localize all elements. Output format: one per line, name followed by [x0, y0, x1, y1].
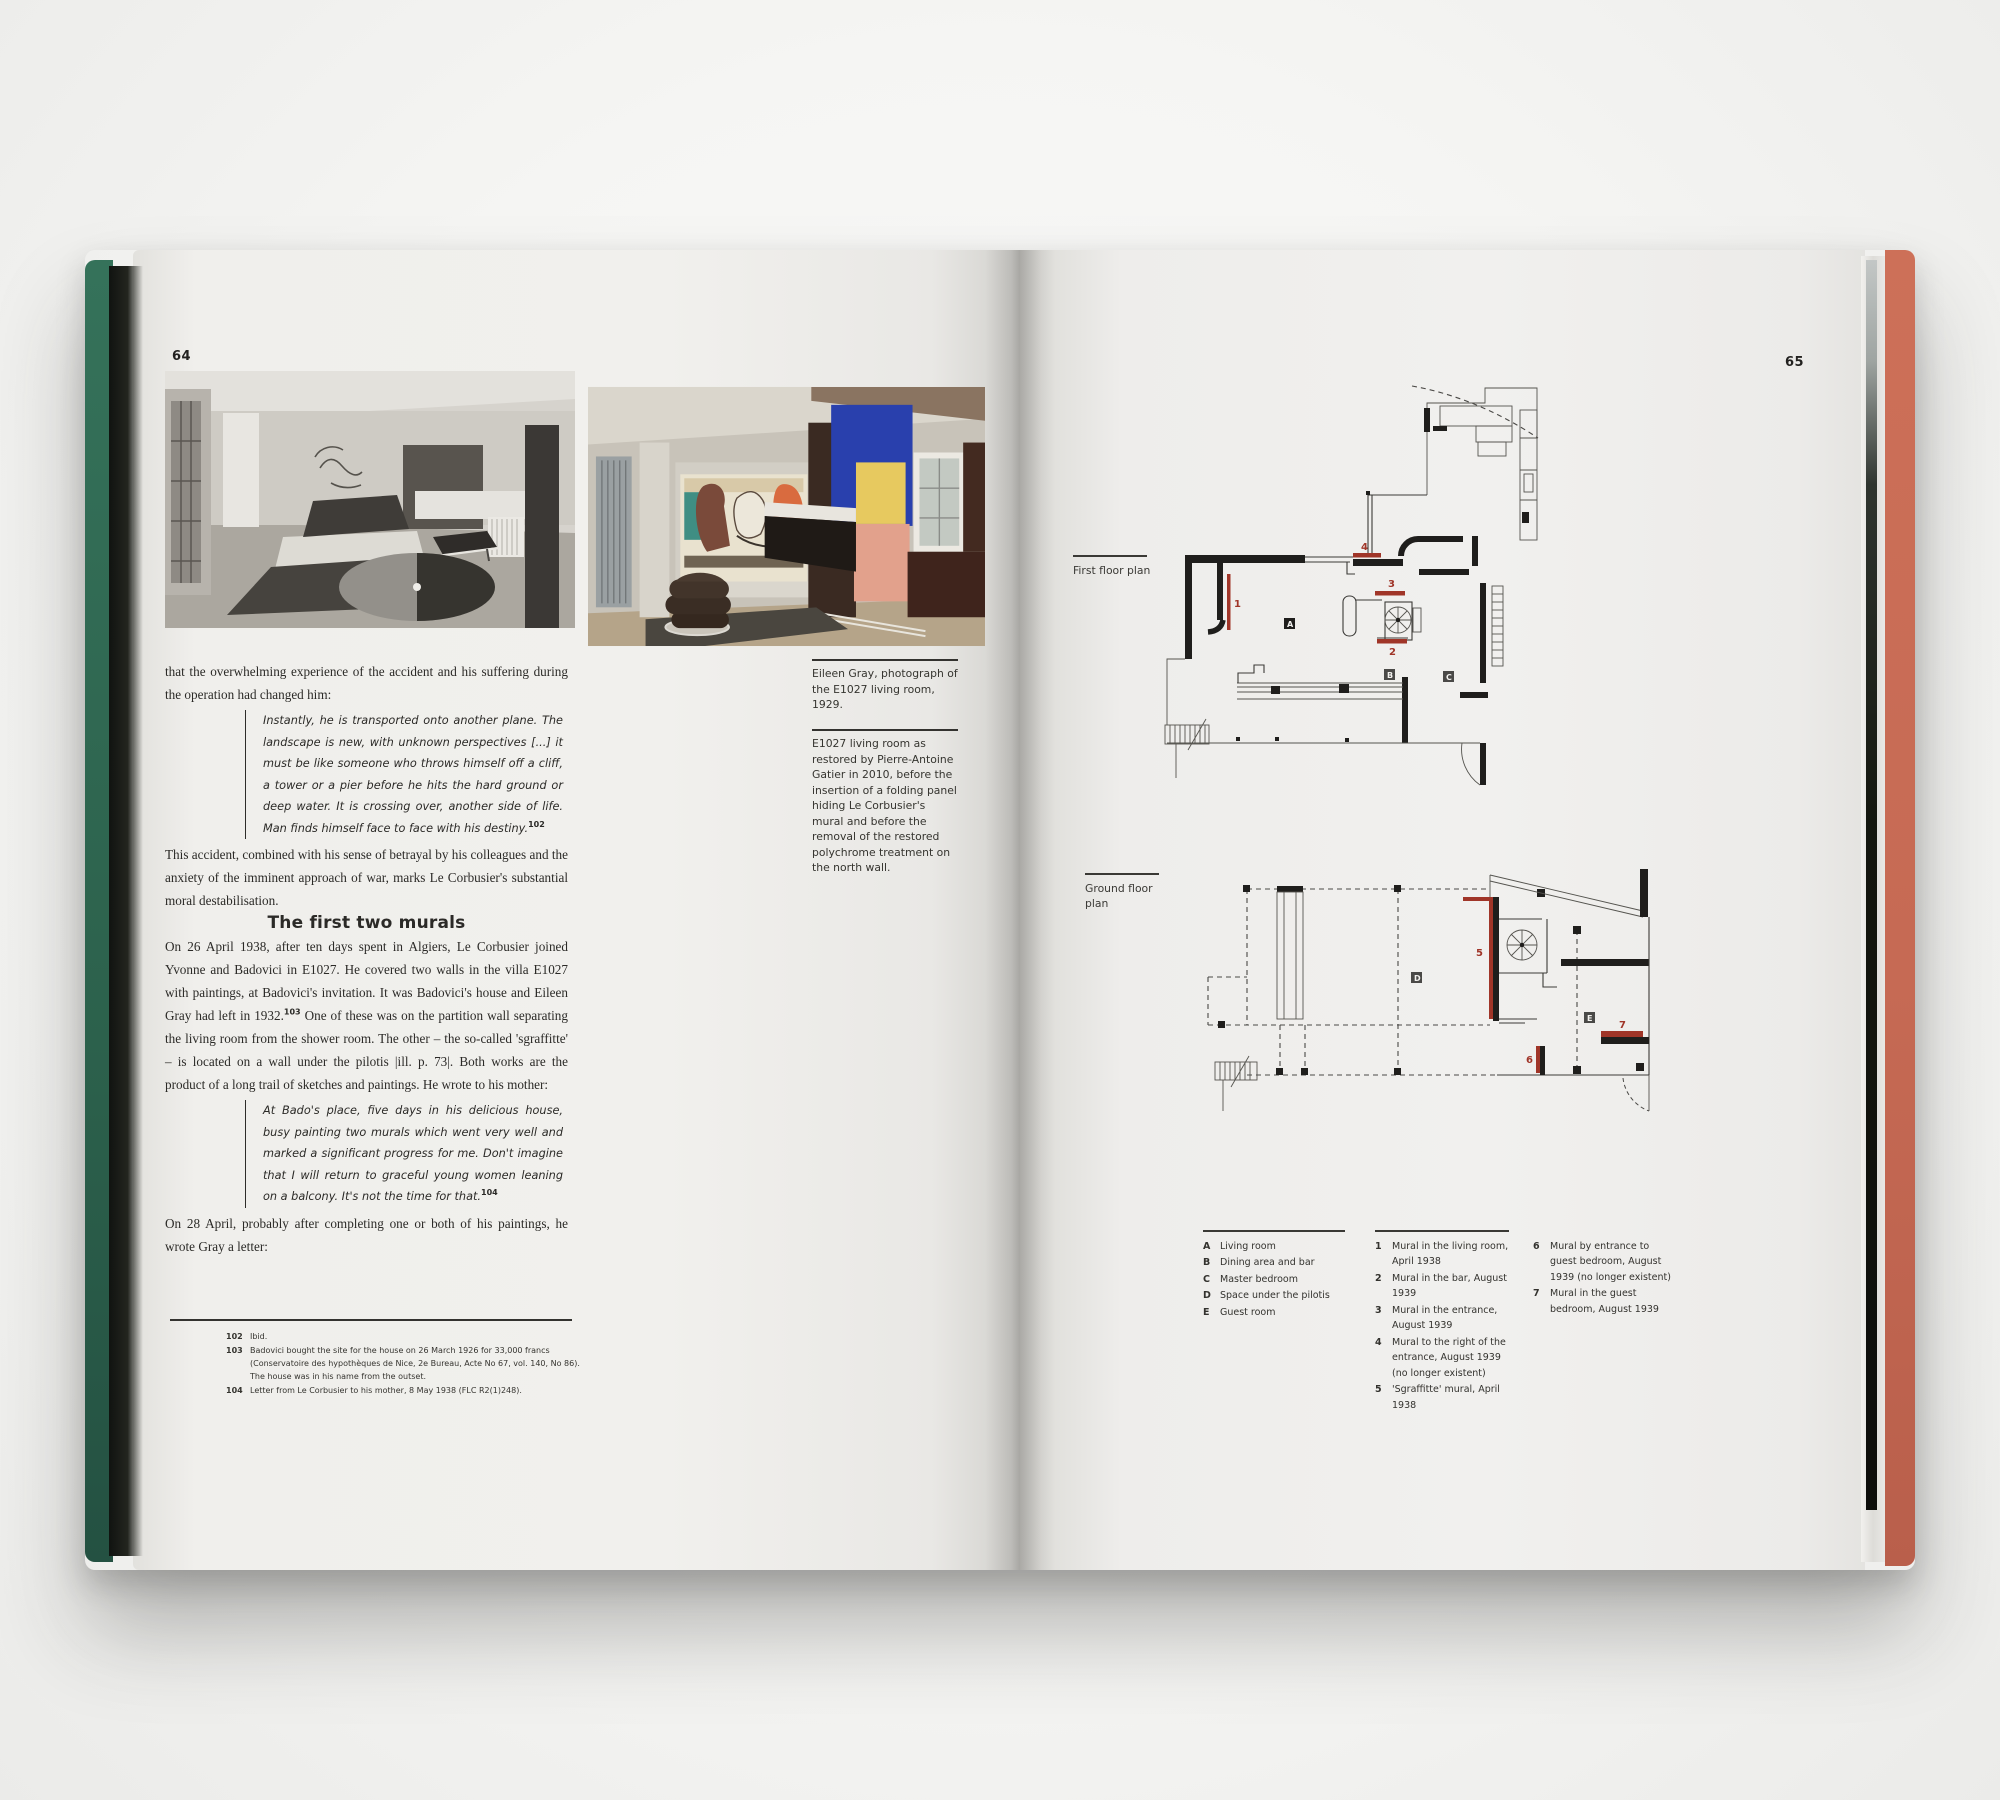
legend-key: C — [1203, 1272, 1210, 1288]
legend-key: E — [1203, 1305, 1210, 1321]
svg-text:B: B — [1387, 671, 1393, 680]
mural-marker-2: 2 — [1377, 638, 1408, 658]
caption-rule-2 — [812, 729, 958, 731]
legend-numbers-column-1: 1 Mural in the living room, April 1938 2… — [1375, 1230, 1533, 1414]
photo-e1027-living-room-restored — [588, 386, 985, 647]
upper-floor-outline-dashed — [1208, 889, 1577, 1075]
legend-key: 1 — [1375, 1239, 1382, 1255]
paragraph-2: This accident, combined with his sense o… — [165, 843, 568, 912]
caption-photo-1: Eileen Gray, photograph of the E1027 liv… — [812, 666, 960, 713]
legend-key: D — [1203, 1288, 1211, 1304]
paragraph-4: On 28 April, probably after completing o… — [165, 1212, 568, 1258]
c-wall-right — [963, 443, 985, 552]
pilotis-columns — [1218, 885, 1644, 1075]
book-cover-right-edge — [1885, 250, 1915, 1566]
footnote-ref-104: 104 — [481, 1188, 498, 1197]
footnotes: 102 Ibid. 103 Badovici bought the site f… — [170, 1330, 582, 1398]
legend-key: 2 — [1375, 1271, 1382, 1287]
room-letter-E: E — [1584, 1012, 1595, 1023]
legend-numbers-column-2: 6 Mural by entrance to guest bedroom, Au… — [1533, 1230, 1683, 1414]
slot-from-above — [1277, 886, 1303, 1019]
legend-row-A: A Living room — [1203, 1239, 1375, 1255]
footnote-rule — [170, 1319, 572, 1321]
legend-text: Mural in the bar, August 1939 — [1392, 1273, 1507, 1300]
mural-marker-3: 3 — [1375, 579, 1405, 596]
section-heading: The first two murals — [165, 912, 568, 935]
first-floor-plan: 1 A 4 3 — [1140, 378, 1810, 808]
room-letter-C: C — [1443, 671, 1454, 682]
ramp-diagonals — [1490, 875, 1643, 917]
legend-text: Guest room — [1220, 1307, 1276, 1318]
svg-text:2: 2 — [1389, 647, 1396, 658]
legend-row-7: 7 Mural in the guest bedroom, August 193… — [1533, 1286, 1676, 1317]
page-number-right: 65 — [1785, 355, 1804, 370]
bw-cabinet — [415, 491, 527, 519]
legend-key: 6 — [1533, 1239, 1540, 1255]
photo-e1027-living-room-bw — [165, 371, 575, 628]
first-plan-label-rule — [1073, 555, 1147, 557]
spiral-stair-first-floor — [1385, 602, 1421, 640]
left-cover-shadow — [109, 266, 143, 1556]
c-window — [914, 452, 966, 551]
bw-pillar — [223, 413, 259, 527]
bw-radiator — [488, 517, 524, 557]
mural-marker-1: 1 — [1227, 574, 1241, 630]
svg-text:C: C — [1446, 673, 1452, 682]
legend-rule-1 — [1203, 1230, 1345, 1232]
svg-text:4: 4 — [1361, 542, 1368, 553]
c-entry-gate — [596, 456, 632, 607]
south-glazing — [1237, 665, 1403, 699]
guest-room-top-wall — [1561, 959, 1649, 966]
c-salmon-panel — [854, 524, 910, 601]
legend-row-C: C Master bedroom — [1203, 1272, 1375, 1288]
legend-text: Master bedroom — [1220, 1274, 1298, 1285]
mural-marker-7: 7 — [1601, 1020, 1649, 1044]
legend-text: Dining area and bar — [1220, 1257, 1315, 1268]
mural-marker-5: 5 — [1463, 897, 1499, 1021]
blockquote-1: Instantly, he is transported onto anothe… — [245, 710, 563, 839]
footnote-104: 104 Letter from Le Corbusier to his moth… — [170, 1384, 582, 1397]
photo-of-open-book: 64 — [0, 0, 2000, 1800]
next-page-photo-sliver — [1866, 260, 1877, 1510]
footnote-ref-103: 103 — [284, 1008, 301, 1017]
footnote-text: Ibid. — [250, 1330, 582, 1343]
bedroom-walls — [1401, 536, 1488, 743]
footnote-number: 104 — [226, 1384, 243, 1397]
legend-row-2: 2 Mural in the bar, August 1939 — [1375, 1271, 1510, 1302]
c-bibendum-chair — [665, 573, 731, 635]
svg-text:3: 3 — [1388, 579, 1395, 590]
legend-text: Mural in the guest bedroom, August 1939 — [1550, 1288, 1659, 1315]
bw-round-rug — [339, 553, 495, 621]
caption-rule-1 — [812, 659, 958, 661]
gutter-shadow — [985, 250, 1055, 1570]
bw-column — [525, 425, 559, 628]
legend-row-B: B Dining area and bar — [1203, 1255, 1375, 1271]
mural-marker-6: 6 — [1526, 1046, 1545, 1075]
ground-floor-plan: 5 — [1185, 853, 1745, 1183]
ground-plan-label-rule — [1085, 873, 1159, 875]
room-letter-B: B — [1384, 669, 1395, 680]
footnote-ref-102: 102 — [528, 820, 545, 829]
legend-row-E: E Guest room — [1203, 1305, 1375, 1321]
spiral-stair-ground-floor — [1499, 919, 1547, 973]
book: 64 — [85, 250, 1915, 1570]
legend-key: B — [1203, 1255, 1210, 1271]
legend-text: Mural in the entrance, August 1939 — [1392, 1305, 1497, 1332]
legend-row-3: 3 Mural in the entrance, August 1939 — [1375, 1303, 1510, 1334]
legend-key: 5 — [1375, 1382, 1382, 1398]
footnote-text: Letter from Le Corbusier to his mother, … — [250, 1384, 582, 1397]
footnote-103: 103 Badovici bought the site for the hou… — [170, 1344, 582, 1383]
body-text-column: that the overwhelming experience of the … — [165, 660, 568, 1258]
right-top-wall — [1640, 869, 1648, 917]
paragraph-3: On 26 April 1938, after ten days spent i… — [165, 935, 568, 1096]
side-stair — [1492, 586, 1503, 666]
room-letter-D: D — [1411, 972, 1422, 983]
page-number-left: 64 — [172, 349, 191, 364]
interior-walls-ground — [1497, 917, 1649, 1075]
blockquote-2: At Bado's place, five days in his delici… — [245, 1100, 563, 1208]
svg-text:5: 5 — [1476, 948, 1483, 959]
bw-window — [171, 401, 201, 583]
room-letter-A: A — [1284, 618, 1295, 629]
legend-key: A — [1203, 1239, 1210, 1255]
legend-rule-2 — [1375, 1230, 1509, 1232]
legend-text: Mural in the living room, April 1938 — [1392, 1241, 1508, 1268]
legend-text: Living room — [1220, 1241, 1276, 1252]
door-swing — [1462, 743, 1486, 785]
footnote-number: 103 — [226, 1344, 243, 1357]
legend-row-5: 5 'Sgraffitte' mural, April 1938 — [1375, 1382, 1510, 1413]
legend-row-4: 4 Mural to the right of the entrance, Au… — [1375, 1335, 1510, 1382]
paragraph-intro: that the overwhelming experience of the … — [165, 660, 568, 706]
legend-letters-column: A Living room B Dining area and bar C Ma… — [1203, 1230, 1375, 1414]
legend-key: 7 — [1533, 1286, 1540, 1302]
footnote-number: 102 — [226, 1330, 243, 1343]
legend-text: 'Sgraffitte' mural, April 1938 — [1392, 1384, 1500, 1411]
west-terrace-and-stairs — [1165, 659, 1480, 778]
legend-key: 3 — [1375, 1303, 1382, 1319]
footnote-text: Badovici bought the site for the house o… — [250, 1344, 582, 1383]
legend-text: Space under the pilotis — [1220, 1290, 1330, 1301]
c-wall-below-window — [908, 552, 985, 618]
svg-text:E: E — [1587, 1014, 1592, 1023]
quote-2-text: At Bado's place, five days in his delici… — [263, 1104, 563, 1203]
c-yellow-panel — [856, 462, 906, 524]
caption-photo-2: E1027 living room as restored by Pierre-… — [812, 736, 960, 876]
ground-door-swing — [1623, 1075, 1649, 1111]
ground-stairs — [1215, 1056, 1257, 1111]
ground-plan-label: Ground floor plan — [1085, 881, 1167, 911]
legend-key: 4 — [1375, 1335, 1382, 1351]
plan-legend: A Living room B Dining area and bar C Ma… — [1203, 1230, 1683, 1414]
c-pillar — [640, 443, 670, 618]
legend-row-D: D Space under the pilotis — [1203, 1288, 1375, 1304]
svg-text:D: D — [1414, 974, 1421, 983]
legend-text: Mural by entrance to guest bedroom, Augu… — [1550, 1241, 1671, 1283]
svg-text:6: 6 — [1526, 1055, 1533, 1066]
footnote-102: 102 Ibid. — [170, 1330, 582, 1343]
legend-row-6: 6 Mural by entrance to guest bedroom, Au… — [1533, 1239, 1676, 1286]
svg-text:A: A — [1287, 620, 1294, 629]
legend-row-1: 1 Mural in the living room, April 1938 — [1375, 1239, 1510, 1270]
svg-text:7: 7 — [1619, 1020, 1626, 1031]
mural-marker-4: 4 — [1353, 542, 1403, 566]
terrace-upper-right — [1412, 386, 1538, 540]
legend-text: Mural to the right of the entrance, Augu… — [1392, 1337, 1506, 1379]
svg-text:1: 1 — [1234, 599, 1241, 610]
living-room-walls — [1185, 555, 1368, 659]
quote-1-text: Instantly, he is transported onto anothe… — [263, 714, 563, 835]
